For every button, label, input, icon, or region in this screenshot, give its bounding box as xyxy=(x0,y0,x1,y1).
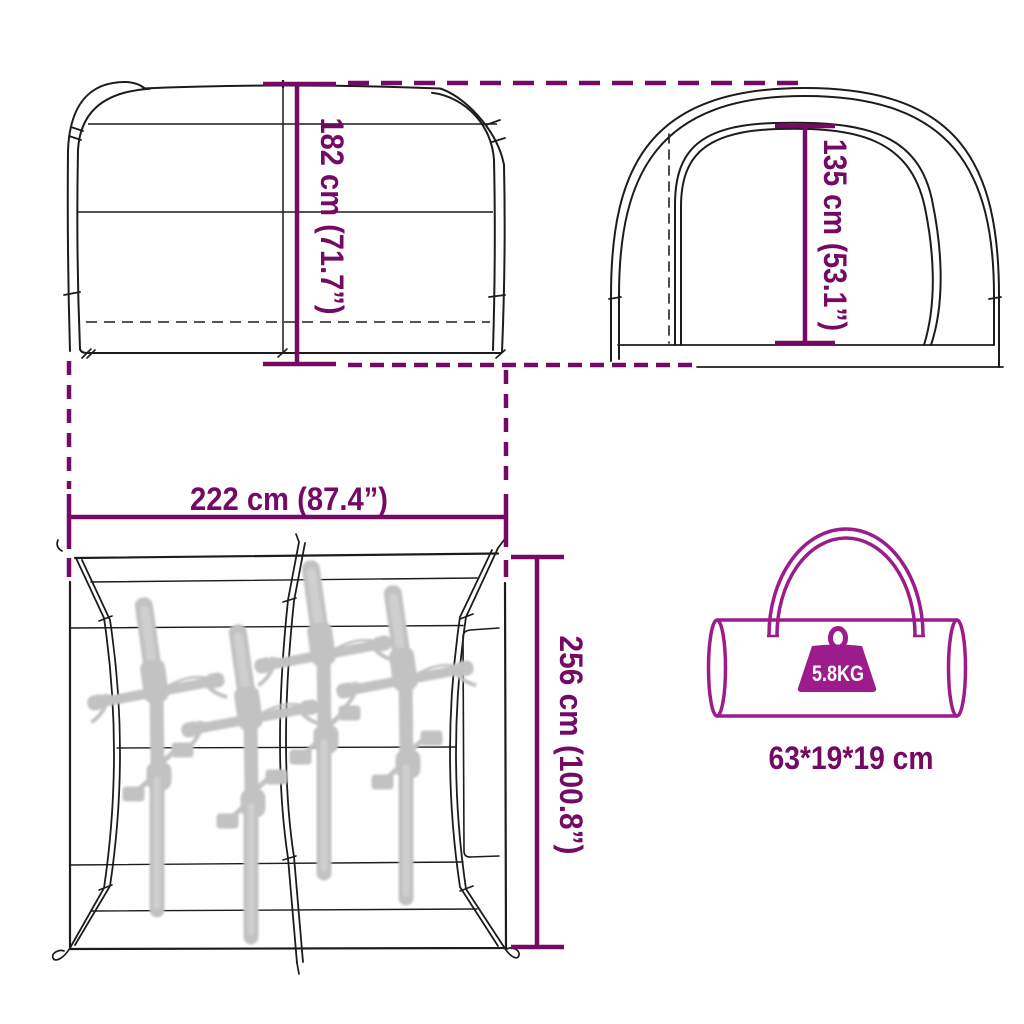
svg-text:135 cm (53.1”): 135 cm (53.1”) xyxy=(817,139,853,331)
svg-text:182 cm (71.7”): 182 cm (71.7”) xyxy=(314,118,350,315)
svg-text:5.8KG: 5.8KG xyxy=(812,661,864,686)
svg-text:256 cm (100.8”): 256 cm (100.8”) xyxy=(553,636,589,855)
svg-text:63*19*19 cm: 63*19*19 cm xyxy=(769,740,934,776)
svg-text:222 cm (87.4”): 222 cm (87.4”) xyxy=(190,481,388,517)
